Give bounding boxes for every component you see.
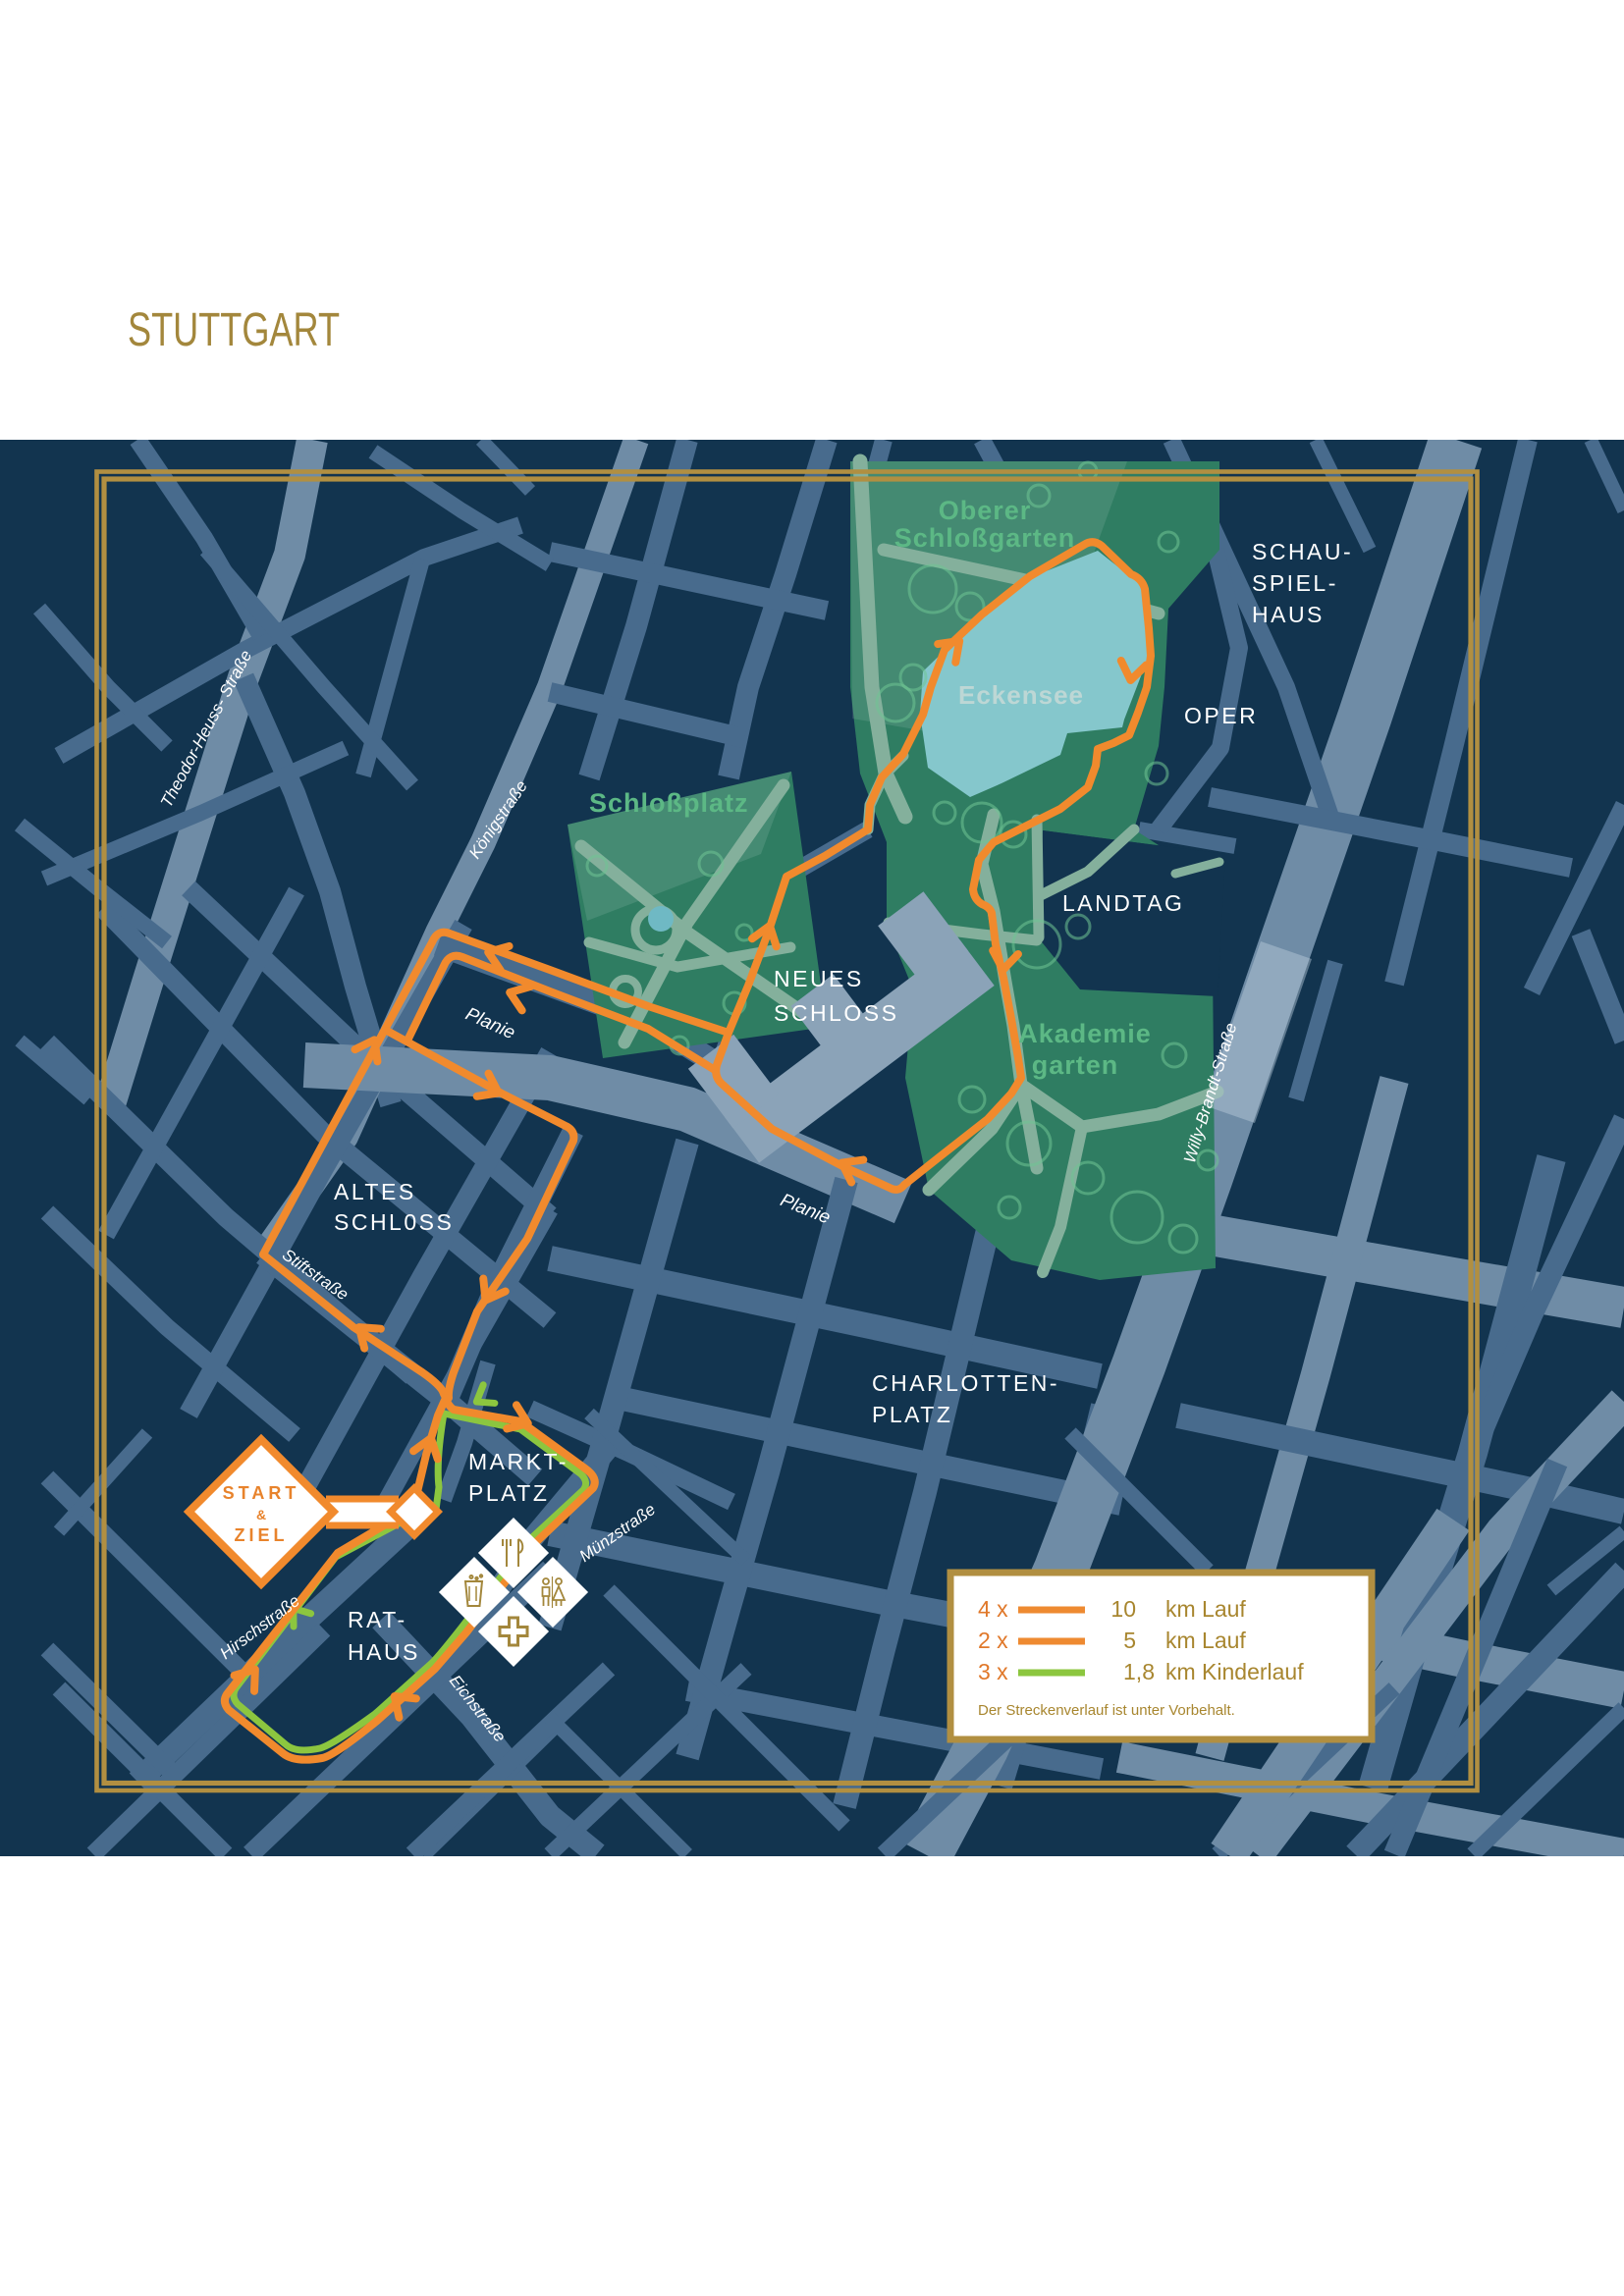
svg-text:1,8: 1,8	[1123, 1659, 1155, 1684]
svg-text:HAUS: HAUS	[1252, 602, 1325, 627]
svg-text:km Lauf: km Lauf	[1165, 1628, 1246, 1653]
svg-text:garten: garten	[1032, 1050, 1119, 1080]
svg-text:NEUES: NEUES	[774, 966, 864, 991]
svg-text:OPER: OPER	[1184, 703, 1258, 728]
svg-text:STUTTGART: STUTTGART	[128, 304, 340, 356]
svg-text:10: 10	[1110, 1596, 1136, 1622]
svg-text:Schloßgarten: Schloßgarten	[894, 523, 1076, 553]
svg-text:START: START	[223, 1483, 300, 1503]
svg-text:HAUS: HAUS	[348, 1639, 420, 1665]
svg-text:SCHLOSS: SCHLOSS	[774, 1000, 898, 1026]
svg-text:Eckensee: Eckensee	[958, 680, 1084, 710]
svg-text:LANDTAG: LANDTAG	[1062, 890, 1184, 916]
svg-text:SCHAU-: SCHAU-	[1252, 539, 1353, 564]
svg-text:SCHL0SS: SCHL0SS	[334, 1209, 454, 1235]
svg-text:Der Streckenverlauf ist unter: Der Streckenverlauf ist unter Vorbehalt.	[978, 1702, 1235, 1719]
svg-text:Schloßplatz: Schloßplatz	[589, 788, 749, 818]
svg-text:5: 5	[1123, 1628, 1136, 1653]
svg-text:4 x: 4 x	[978, 1596, 1008, 1622]
svg-text:Akademie: Akademie	[1018, 1019, 1152, 1048]
svg-text:PLATZ: PLATZ	[468, 1480, 549, 1506]
svg-text:RAT-: RAT-	[348, 1607, 407, 1632]
svg-text:MARKT-: MARKT-	[468, 1449, 568, 1474]
svg-text:ALTES: ALTES	[334, 1179, 416, 1204]
svg-text:3 x: 3 x	[978, 1659, 1008, 1684]
svg-text:Oberer: Oberer	[939, 496, 1032, 525]
svg-text:&: &	[256, 1507, 266, 1522]
svg-text:km Lauf: km Lauf	[1165, 1596, 1246, 1622]
svg-text:PLATZ: PLATZ	[872, 1402, 952, 1427]
svg-text:CHARLOTTEN-: CHARLOTTEN-	[872, 1370, 1059, 1396]
svg-text:km Kinderlauf: km Kinderlauf	[1165, 1659, 1304, 1684]
svg-text:2 x: 2 x	[978, 1628, 1008, 1653]
svg-text:ZIEL: ZIEL	[235, 1525, 289, 1545]
svg-text:SPIEL-: SPIEL-	[1252, 570, 1338, 596]
